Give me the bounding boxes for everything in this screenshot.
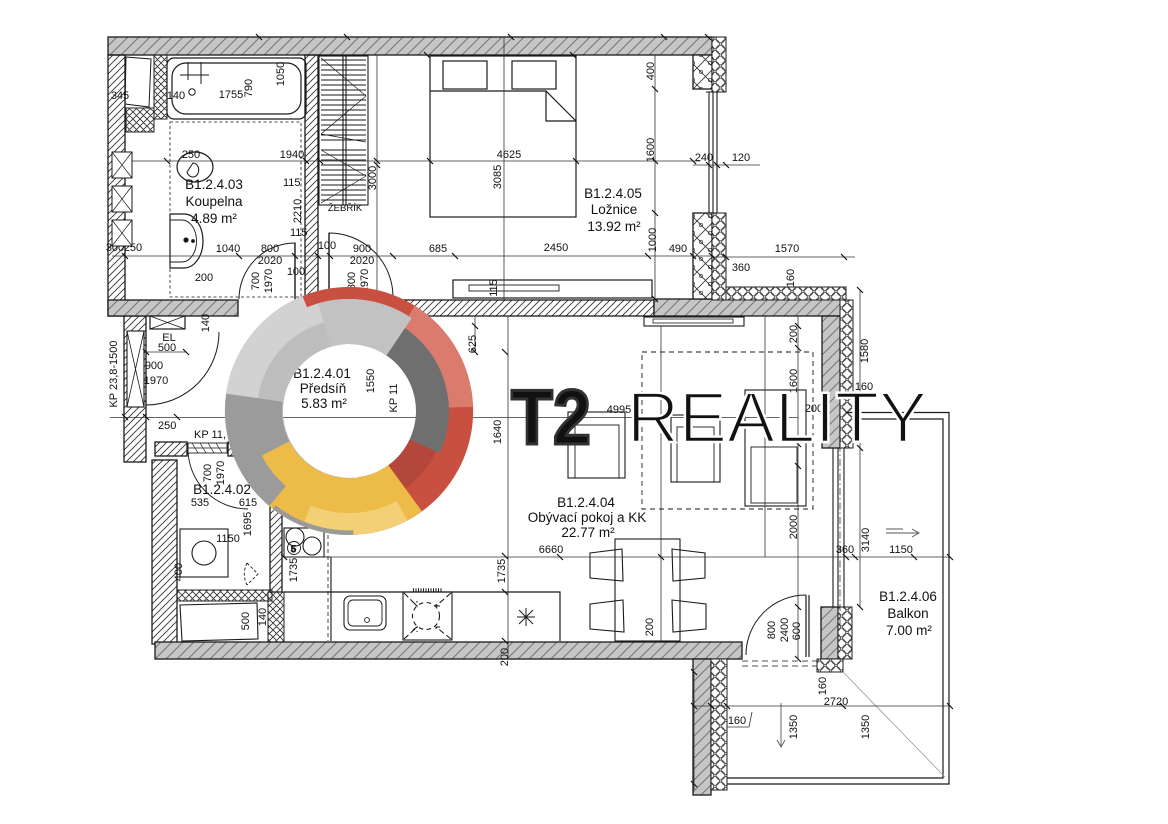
svg-text:KP 23,8-1500: KP 23,8-1500 [108, 340, 120, 407]
svg-text:1755: 1755 [219, 89, 243, 101]
svg-text:1350: 1350 [860, 715, 872, 739]
svg-text:1970: 1970 [263, 269, 275, 293]
svg-text:800: 800 [261, 243, 279, 255]
svg-text:900: 900 [145, 360, 163, 372]
svg-text:2020: 2020 [350, 255, 374, 267]
svg-text:1640: 1640 [492, 420, 504, 444]
svg-text:1350: 1350 [788, 715, 800, 739]
svg-text:160: 160 [785, 269, 797, 287]
svg-text:2210: 2210 [292, 199, 304, 223]
svg-text:500: 500 [240, 612, 252, 630]
svg-text:13.92 m²: 13.92 m² [587, 219, 641, 234]
svg-text:200: 200 [499, 648, 511, 666]
svg-text:500: 500 [158, 342, 176, 354]
svg-text:1570: 1570 [775, 243, 799, 255]
svg-text:240: 240 [695, 152, 713, 164]
svg-text:3085: 3085 [492, 165, 504, 189]
svg-text:5.83 m²: 5.83 m² [301, 396, 347, 411]
svg-text:345: 345 [111, 90, 129, 102]
svg-text:1735: 1735 [496, 559, 508, 583]
svg-text:160: 160 [728, 715, 746, 727]
svg-text:4.89 m²: 4.89 m² [191, 211, 237, 226]
svg-text:1580: 1580 [859, 339, 871, 363]
svg-text:B1.2.4.05: B1.2.4.05 [584, 186, 642, 201]
svg-text:250: 250 [158, 420, 176, 432]
svg-text:115: 115 [488, 279, 500, 297]
svg-text:22.77 m²: 22.77 m² [561, 525, 615, 540]
svg-text:800: 800 [766, 621, 778, 639]
svg-text:Balkon: Balkon [887, 606, 928, 621]
svg-text:Ložnice: Ložnice [591, 202, 638, 217]
svg-text:535: 535 [191, 497, 209, 509]
svg-text:120: 120 [732, 152, 750, 164]
svg-text:490: 490 [669, 243, 687, 255]
svg-text:1735: 1735 [288, 558, 300, 582]
svg-text:400: 400 [173, 563, 185, 581]
svg-text:200: 200 [644, 618, 656, 636]
svg-text:1150: 1150 [216, 533, 240, 545]
svg-text:KP 11,: KP 11, [194, 429, 226, 441]
svg-text:400: 400 [645, 62, 657, 80]
svg-text:4625: 4625 [497, 149, 521, 161]
svg-text:1040: 1040 [216, 243, 240, 255]
svg-text:1940: 1940 [280, 149, 304, 161]
svg-text:200: 200 [788, 325, 800, 343]
svg-text:T2: T2 [511, 373, 591, 461]
svg-text:360: 360 [732, 262, 750, 274]
svg-text:1600: 1600 [645, 138, 657, 162]
svg-text:1150: 1150 [889, 544, 913, 556]
svg-text:2000: 2000 [788, 515, 800, 539]
svg-text:Předsíň: Předsíň [300, 381, 347, 396]
svg-text:6660: 6660 [539, 544, 563, 556]
svg-text:Koupelna: Koupelna [185, 194, 243, 209]
svg-text:250: 250 [182, 149, 200, 161]
svg-text:700: 700 [250, 272, 262, 290]
svg-text:5: 5 [291, 544, 296, 554]
svg-text:140: 140 [200, 314, 212, 332]
svg-text:140: 140 [167, 90, 185, 102]
svg-text:200: 200 [195, 272, 213, 284]
svg-text:B1.2.4.02: B1.2.4.02 [193, 482, 251, 497]
svg-text:700: 700 [202, 464, 214, 482]
svg-text:615: 615 [239, 497, 257, 509]
svg-text:115: 115 [283, 177, 301, 189]
svg-text:ŽEBŘÍK: ŽEBŘÍK [328, 203, 363, 214]
svg-text:1050: 1050 [275, 62, 287, 86]
svg-text:B1.2.4.06: B1.2.4.06 [879, 589, 937, 604]
svg-text:360: 360 [836, 544, 854, 556]
svg-text:1695: 1695 [242, 512, 254, 536]
svg-text:Obývací pokoj a KK: Obývací pokoj a KK [528, 510, 647, 525]
svg-text:100: 100 [318, 240, 336, 252]
svg-text:2400: 2400 [779, 618, 791, 642]
svg-text:1000: 1000 [647, 228, 659, 252]
svg-text:790: 790 [243, 79, 255, 97]
svg-text:625: 625 [467, 335, 479, 353]
svg-text:1550: 1550 [365, 369, 377, 393]
svg-text:KP 11: KP 11 [388, 384, 400, 413]
svg-text:3000: 3000 [367, 166, 379, 190]
svg-text:B1.2.4.03: B1.2.4.03 [185, 177, 243, 192]
svg-text:160: 160 [817, 677, 829, 695]
svg-text:REALITY: REALITY [627, 379, 927, 458]
svg-text:1970: 1970 [144, 375, 168, 387]
svg-text:2720: 2720 [824, 696, 848, 708]
svg-text:115: 115 [290, 227, 308, 239]
svg-text:3140: 3140 [860, 528, 872, 552]
svg-text:2020: 2020 [258, 255, 282, 267]
svg-text:100: 100 [287, 266, 305, 278]
svg-text:7.00 m²: 7.00 m² [886, 623, 932, 638]
svg-text:685: 685 [429, 243, 447, 255]
svg-text:2450: 2450 [544, 242, 568, 254]
svg-text:600: 600 [791, 622, 803, 640]
svg-text:900: 900 [353, 243, 371, 255]
svg-text:B1.2.4.04: B1.2.4.04 [557, 495, 615, 510]
svg-text:B1.2.4.01: B1.2.4.01 [293, 366, 351, 381]
svg-text:140: 140 [257, 608, 269, 626]
